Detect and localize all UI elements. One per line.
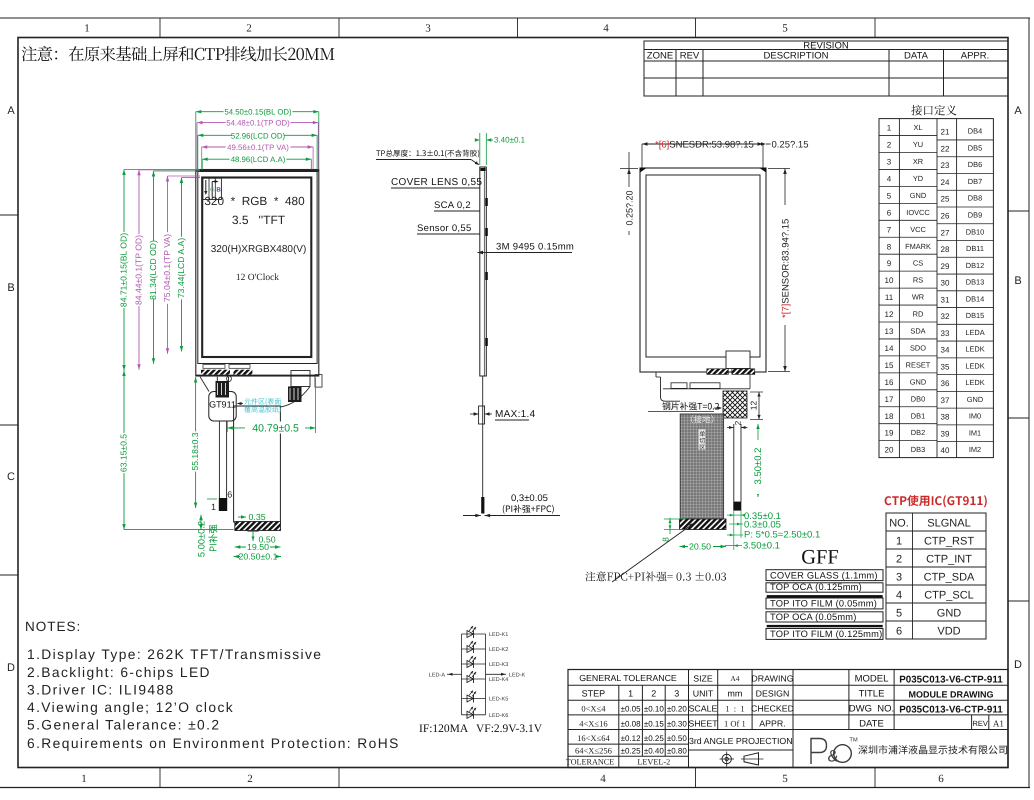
svg-text:D: D (1014, 659, 1022, 671)
svg-text:12: 12 (885, 310, 894, 319)
svg-text:DB6: DB6 (968, 160, 982, 169)
svg-text:±0.30: ±0.30 (667, 720, 688, 729)
svg-text:DATA: DATA (904, 51, 929, 62)
svg-text:7: 7 (887, 225, 892, 234)
svg-text:320 * RGB * 480: 320 * RGB * 480 (204, 194, 305, 208)
svg-text:64<X≤256: 64<X≤256 (575, 746, 612, 756)
svg-text:5: 5 (782, 773, 788, 785)
svg-text:DB5: DB5 (968, 143, 982, 152)
svg-text:DB13: DB13 (966, 278, 985, 287)
svg-text:8: 8 (887, 242, 892, 251)
svg-text:GFF: GFF (801, 547, 839, 569)
svg-text:LEDK: LEDK (965, 361, 984, 370)
svg-text:16<X≤64: 16<X≤64 (577, 733, 610, 743)
svg-text:B: B (7, 282, 14, 294)
svg-text:2: 2 (887, 141, 892, 150)
svg-text:ZONE: ZONE (647, 51, 673, 62)
svg-text:IM2: IM2 (969, 445, 981, 454)
svg-text:320(H)XRGBX480(V): 320(H)XRGBX480(V) (211, 244, 307, 255)
svg-text:±0.50: ±0.50 (667, 734, 688, 743)
svg-text:9: 9 (887, 259, 892, 268)
svg-text:YD: YD (913, 174, 923, 183)
svg-text:SDA: SDA (910, 327, 925, 336)
svg-text:6: 6 (227, 490, 232, 500)
svg-text:6: 6 (887, 208, 892, 217)
svg-text:1 : 1: 1 : 1 (725, 704, 744, 714)
svg-text:40.79±0.5: 40.79±0.5 (252, 423, 299, 435)
svg-text:LED-K: LED-K (509, 673, 526, 679)
svg-text:1: 1 (896, 536, 902, 548)
svg-text:DRAWING: DRAWING (751, 674, 793, 684)
svg-text:DB11: DB11 (966, 244, 984, 253)
svg-text:15: 15 (885, 361, 894, 370)
svg-text:RD: RD (913, 310, 924, 319)
svg-text:30: 30 (941, 279, 950, 288)
svg-text:6: 6 (896, 626, 902, 638)
svg-text:4: 4 (603, 23, 609, 35)
svg-text:SCALE: SCALE (689, 704, 718, 714)
svg-text:3M 9495 0.15mm: 3M 9495 0.15mm (496, 242, 574, 253)
svg-text:0.25?.15: 0.25?.15 (772, 140, 809, 151)
svg-text:2.Backlight: 6-chips LED: 2.Backlight: 6-chips LED (27, 665, 211, 680)
svg-text:31: 31 (941, 295, 950, 304)
svg-text:LED-K1: LED-K1 (489, 632, 508, 638)
svg-text:TOLERANCE: TOLERANCE (566, 758, 615, 767)
svg-text:6.Requirements on Environment: 6.Requirements on Environment Protection… (27, 736, 400, 751)
svg-text:G: G (210, 187, 215, 194)
svg-text:55.18±0.3: 55.18±0.3 (190, 432, 200, 470)
svg-text:FMARK: FMARK (905, 242, 931, 251)
svg-text:REV: REV (680, 51, 700, 62)
svg-text:LED-K3: LED-K3 (489, 662, 508, 668)
svg-text:XL: XL (913, 123, 922, 132)
svg-text:17: 17 (885, 395, 894, 404)
svg-text:33: 33 (941, 329, 950, 338)
svg-text:63.15±0.5: 63.15±0.5 (119, 434, 129, 472)
svg-text:0<X≤4: 0<X≤4 (581, 704, 606, 714)
svg-text:IOVCC: IOVCC (906, 208, 930, 217)
svg-text:GND: GND (937, 608, 962, 620)
svg-text:27: 27 (941, 228, 950, 237)
svg-text:GND: GND (910, 191, 926, 200)
svg-text:TOP OCA (0.125mm): TOP OCA (0.125mm) (770, 582, 862, 592)
svg-text:6: 6 (938, 773, 944, 785)
svg-text:MODEL: MODEL (855, 674, 889, 685)
svg-text:COVER LENS 0,55: COVER LENS 0,55 (391, 177, 482, 188)
svg-text:DB7: DB7 (968, 177, 982, 186)
svg-text:IM1: IM1 (969, 428, 981, 437)
svg-text:±0.25: ±0.25 (644, 734, 665, 743)
svg-text:LEDA: LEDA (965, 328, 984, 337)
svg-text:MAX:1.4: MAX:1.4 (495, 409, 536, 420)
svg-text:APPR.: APPR. (759, 719, 785, 729)
svg-text:Sensor 0,55: Sensor 0,55 (417, 223, 472, 234)
svg-text:COVER GLASS (1.1mm): COVER GLASS (1.1mm) (770, 570, 878, 580)
svg-text:LEDK: LEDK (965, 378, 984, 387)
svg-text:5: 5 (887, 191, 892, 200)
svg-text:CTP_SDA: CTP_SDA (924, 572, 975, 584)
svg-text:1 Of 1: 1 Of 1 (724, 719, 746, 729)
svg-text:23: 23 (941, 161, 950, 170)
svg-text:19.50: 19.50 (247, 542, 269, 552)
svg-text:NO.: NO. (889, 518, 909, 530)
svg-text:MODULE DRAWING: MODULE DRAWING (909, 690, 994, 700)
svg-text:25: 25 (941, 195, 950, 204)
svg-text:SDO: SDO (910, 343, 926, 352)
svg-text:CHECKED: CHECKED (751, 704, 794, 714)
svg-text:TOP ITO FILM (0.05mm): TOP ITO FILM (0.05mm) (770, 599, 877, 609)
svg-text:18: 18 (885, 412, 894, 421)
svg-text:84.71±0.15(BL OD): 84.71±0.15(BL OD) (119, 233, 129, 307)
svg-text:SHEET: SHEET (688, 719, 718, 729)
svg-text:B: B (216, 187, 221, 194)
svg-text:1: 1 (628, 689, 633, 699)
svg-text:84.44±0.1(TP OD): 84.44±0.1(TP OD) (134, 235, 144, 305)
svg-text:16: 16 (885, 378, 894, 387)
svg-text:SLGNAL: SLGNAL (927, 518, 970, 530)
svg-text:5.General Talerance: ±0.2: 5.General Talerance: ±0.2 (27, 718, 220, 733)
svg-text:28: 28 (941, 245, 950, 254)
svg-text:IM0: IM0 (969, 412, 981, 421)
svg-text:A4: A4 (730, 674, 739, 683)
svg-text:4: 4 (600, 773, 606, 785)
svg-text:4: 4 (887, 174, 892, 183)
svg-text:TITLE: TITLE (859, 689, 885, 700)
svg-text:RS: RS (913, 276, 923, 285)
svg-text:A1: A1 (993, 719, 1004, 729)
svg-text:37: 37 (941, 396, 950, 405)
svg-text:GT911: GT911 (209, 400, 236, 410)
svg-text:5: 5 (782, 23, 788, 35)
svg-text:REV: REV (972, 719, 987, 728)
svg-text:UNIT: UNIT (693, 689, 714, 699)
svg-text:WR: WR (912, 293, 924, 302)
svg-text:DB2: DB2 (911, 428, 925, 437)
svg-text:DB10: DB10 (966, 227, 985, 236)
svg-text:A: A (7, 105, 15, 117)
svg-text:5.00±0.2: 5.00±0.2 (197, 521, 207, 557)
svg-text:±0.05: ±0.05 (621, 705, 642, 714)
svg-text:38: 38 (941, 413, 950, 422)
svg-text:YU: YU (913, 140, 923, 149)
svg-text:±0.12: ±0.12 (621, 734, 642, 743)
svg-text:34: 34 (941, 346, 950, 355)
svg-text:4: 4 (896, 590, 902, 602)
svg-text:DB9: DB9 (968, 211, 982, 220)
svg-text:DB4: DB4 (968, 127, 982, 136)
svg-text:GND: GND (910, 377, 926, 386)
svg-text:10: 10 (885, 276, 894, 285)
svg-text:LED-K5: LED-K5 (489, 697, 508, 703)
svg-text:4.Viewing angle; 12’O clock: 4.Viewing angle; 12’O clock (27, 700, 234, 715)
svg-text:40: 40 (941, 446, 950, 455)
svg-text:11: 11 (885, 293, 894, 302)
svg-text:13: 13 (885, 327, 894, 336)
svg-text:DESIGN: DESIGN (756, 689, 790, 699)
svg-text:GND: GND (967, 395, 983, 404)
svg-text:TOP OCA (0.05mm): TOP OCA (0.05mm) (770, 612, 857, 622)
svg-text:32: 32 (941, 312, 950, 321)
svg-text:VDD: VDD (937, 626, 960, 638)
svg-text:LED-K6: LED-K6 (489, 713, 508, 719)
svg-text:P035C013-V6-CTP-911: P035C013-V6-CTP-911 (899, 705, 1003, 716)
svg-text:3: 3 (674, 689, 679, 699)
svg-text:DB8: DB8 (968, 194, 982, 203)
svg-text:DB15: DB15 (966, 311, 985, 320)
svg-text:IF:120MA: IF:120MA (419, 723, 469, 735)
svg-text:C: C (7, 471, 15, 483)
svg-text:12 O'Clock: 12 O'Clock (236, 273, 279, 283)
svg-text:49.56±0.1(TP VA): 49.56±0.1(TP VA) (227, 143, 289, 152)
svg-text:SIZE: SIZE (693, 674, 713, 684)
svg-text:A: A (1014, 105, 1022, 117)
svg-text:TOP ITO FILM (0.125mm): TOP ITO FILM (0.125mm) (770, 629, 882, 639)
svg-text:DESCRIPTION: DESCRIPTION (764, 51, 829, 62)
svg-text:1.Display Type: 262K TFT/Trans: 1.Display Type: 262K TFT/Transmissive (27, 647, 322, 662)
svg-text:75.04±0.1(TP VA): 75.04±0.1(TP VA) (162, 234, 172, 302)
svg-text:20.50: 20.50 (689, 542, 711, 552)
svg-text:DB3: DB3 (911, 445, 925, 454)
svg-text:P035C013-V6-CTP-911: P035C013-V6-CTP-911 (899, 675, 1003, 686)
svg-text:3.50±0.1: 3.50±0.1 (743, 541, 780, 552)
svg-text:54.48±0.1(TP OD): 54.48±0.1(TP OD) (226, 119, 290, 128)
svg-text:3rd ANGLE PROJECTION: 3rd ANGLE PROJECTION (689, 736, 793, 746)
svg-text:0.35: 0.35 (249, 512, 266, 522)
svg-text:2: 2 (651, 689, 656, 699)
svg-text:CTP_RST: CTP_RST (924, 536, 974, 548)
svg-text:2: 2 (247, 773, 253, 785)
svg-text:VF:2.9V-3.1V: VF:2.9V-3.1V (476, 723, 543, 735)
svg-text:2: 2 (246, 23, 252, 35)
svg-text:0.25?.20: 0.25?.20 (624, 190, 634, 225)
svg-text:LEDK: LEDK (965, 345, 984, 354)
svg-text:±0.08: ±0.08 (621, 720, 642, 729)
svg-text:CTP_SCL: CTP_SCL (924, 590, 974, 602)
svg-text:LEVEL-2: LEVEL-2 (637, 758, 670, 767)
svg-text:LED-K2: LED-K2 (489, 647, 508, 653)
svg-text:APPR.: APPR. (961, 51, 990, 62)
svg-text:22: 22 (941, 144, 950, 153)
svg-text:26: 26 (941, 212, 950, 221)
svg-text:19: 19 (885, 429, 894, 438)
svg-text:21: 21 (941, 128, 950, 137)
svg-text:1: 1 (887, 124, 892, 133)
svg-text:DB0: DB0 (911, 394, 925, 403)
svg-text:DB14: DB14 (966, 294, 985, 303)
svg-text:29: 29 (941, 262, 950, 271)
svg-text:14: 14 (885, 344, 894, 353)
svg-text:LED-K4: LED-K4 (489, 677, 508, 683)
svg-text:36: 36 (941, 379, 950, 388)
svg-text:3.Driver IC: ILI9488: 3.Driver IC: ILI9488 (27, 683, 175, 698)
svg-text:±0.10: ±0.10 (644, 705, 665, 714)
svg-text:20.50±0.1: 20.50±0.1 (238, 551, 277, 561)
svg-text:DB1: DB1 (911, 411, 925, 420)
svg-text:CTP_INT: CTP_INT (926, 554, 972, 566)
svg-text:5: 5 (896, 608, 902, 620)
svg-text:52.96(LCD OD): 52.96(LCD OD) (231, 131, 286, 140)
svg-text:20: 20 (885, 446, 894, 455)
svg-text:&: & (828, 748, 839, 766)
svg-text:DATE: DATE (859, 719, 884, 730)
svg-text:3.5 ''TFT: 3.5 ''TFT (232, 213, 286, 227)
svg-text:3.40±0.1: 3.40±0.1 (494, 136, 526, 145)
svg-text:73.44(LCD A.A): 73.44(LCD A.A) (176, 238, 186, 298)
svg-text:VCC: VCC (910, 225, 926, 234)
svg-text:81.34(LCD OD): 81.34(LCD OD) (148, 240, 158, 300)
svg-text:35: 35 (941, 362, 950, 371)
svg-text:D: D (7, 662, 15, 674)
svg-text:3: 3 (887, 158, 892, 167)
svg-text:±0.25: ±0.25 (621, 747, 642, 756)
svg-text:±0.15: ±0.15 (644, 720, 665, 729)
svg-text:DB12: DB12 (966, 261, 985, 270)
svg-text:3.50±0.2: 3.50±0.2 (753, 448, 764, 485)
svg-text:±0.20: ±0.20 (667, 705, 688, 714)
svg-text:STEP: STEP (582, 689, 606, 699)
svg-text:DWG NO.: DWG NO. (849, 704, 894, 715)
svg-text:3: 3 (896, 572, 902, 584)
svg-text:2: 2 (896, 554, 902, 566)
svg-text:GENERAL TOLERANCE: GENERAL TOLERANCE (579, 673, 677, 683)
svg-text:XR: XR (913, 157, 923, 166)
svg-text:B: B (1014, 275, 1021, 287)
svg-text:LED-A: LED-A (429, 673, 446, 679)
svg-text:0,3±0.05: 0,3±0.05 (511, 493, 548, 504)
svg-text:*[7]SENSOR:83.94?.15: *[7]SENSOR:83.94?.15 (780, 219, 791, 318)
svg-text:TM: TM (849, 738, 858, 744)
svg-text:NOTES:: NOTES: (25, 619, 81, 634)
svg-text:1: 1 (81, 773, 87, 785)
svg-text:±0.40: ±0.40 (644, 747, 665, 756)
svg-text:SCA 0,2: SCA 0,2 (434, 200, 471, 211)
svg-text:39: 39 (941, 429, 950, 438)
svg-text:CS: CS (913, 259, 923, 268)
svg-text:4<X≤16: 4<X≤16 (579, 719, 607, 729)
svg-text:±0.80: ±0.80 (667, 747, 688, 756)
svg-text:P: 5*0.5=2.50±0.1: P: 5*0.5=2.50±0.1 (744, 530, 820, 541)
svg-text:48.96(LCD A.A): 48.96(LCD A.A) (231, 155, 286, 164)
svg-text:RESET: RESET (906, 360, 931, 369)
svg-text:1: 1 (211, 502, 216, 512)
svg-text:12: 12 (748, 401, 758, 411)
svg-text:24: 24 (941, 178, 950, 187)
svg-text:1: 1 (84, 23, 90, 35)
svg-text:mm: mm (727, 689, 742, 699)
svg-text:54.50±0.15(BL OD): 54.50±0.15(BL OD) (224, 108, 292, 117)
svg-text:*[6]SNESDR:53.98?.15: *[6]SNESDR:53.98?.15 (655, 140, 754, 151)
svg-text:3: 3 (425, 23, 431, 35)
